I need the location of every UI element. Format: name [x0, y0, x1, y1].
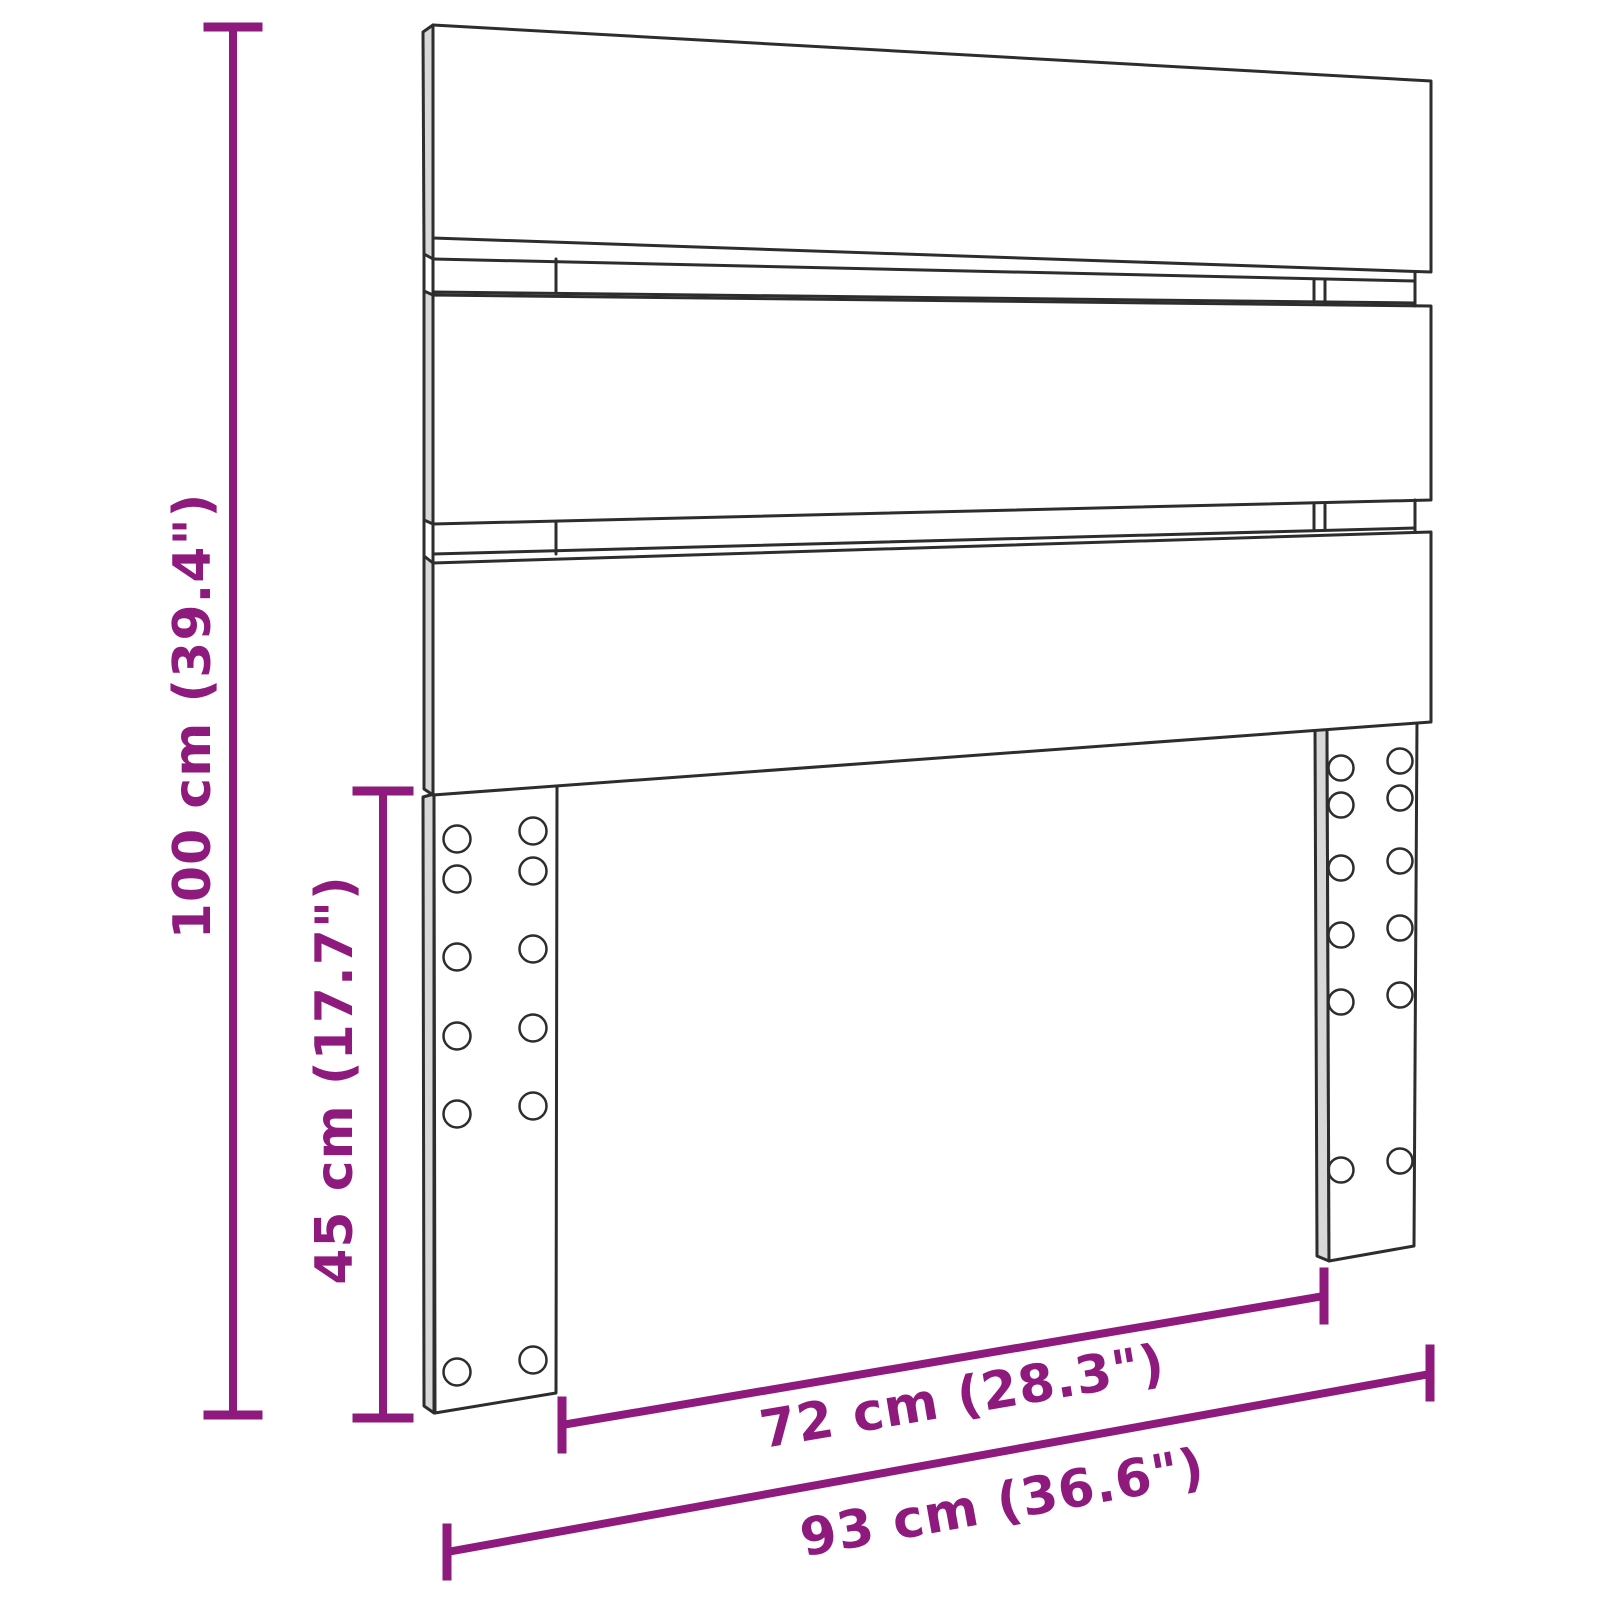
dimension-diagram: 100 cm (39.4") 45 cm (17.7") 72 cm (28.3…	[0, 0, 1600, 1600]
middle-slat-front-face	[433, 295, 1431, 524]
top-slat-front-face	[433, 25, 1431, 272]
height-dimension-label: 100 cm (39.4")	[163, 493, 223, 940]
left-leg-side-face	[423, 794, 434, 1413]
left-leg-front-face	[434, 785, 557, 1413]
right-leg-front-face	[1327, 721, 1417, 1261]
headboard-drawing	[423, 25, 1431, 1413]
leg-height-dimension-label: 45 cm (17.7")	[305, 875, 365, 1285]
inner-width-dimension-label: 72 cm (28.3")	[756, 1333, 1170, 1460]
bottom-slat-front-face	[433, 532, 1431, 795]
total-width-dimension-label: 93 cm (36.6")	[796, 1437, 1210, 1569]
diagram-canvas: 100 cm (39.4") 45 cm (17.7") 72 cm (28.3…	[0, 0, 1600, 1600]
